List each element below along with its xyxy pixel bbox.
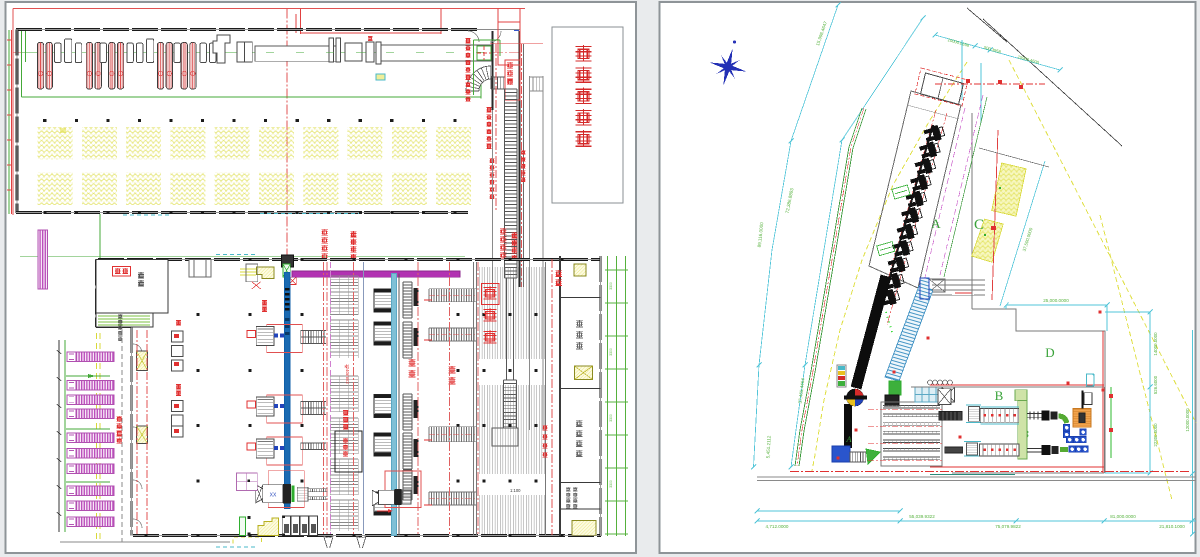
svg-text:1:100: 1:100	[510, 488, 521, 493]
svg-text:C: C	[974, 217, 984, 233]
svg-text:3300: 3300	[609, 480, 613, 488]
svg-text:A: A	[846, 435, 852, 444]
svg-text:526.6000: 526.6000	[1153, 375, 1158, 394]
svg-text:55,039.9322: 55,039.9322	[909, 514, 935, 519]
svg-text:14000.0000: 14000.0000	[1153, 332, 1158, 356]
svg-text:D: D	[1045, 345, 1054, 360]
svg-text:4,712.0000: 4,712.0000	[766, 524, 789, 529]
svg-text:21,810.1000: 21,810.1000	[1159, 524, 1185, 529]
svg-text:A: A	[931, 216, 941, 231]
svg-text:12000.0000: 12000.0000	[1185, 408, 1190, 432]
svg-text:3300: 3300	[609, 348, 613, 356]
svg-text:25,000.0000: 25,000.0000	[1043, 298, 1069, 303]
svg-text:3240mm2: 3240mm2	[345, 364, 350, 384]
svg-text:B: B	[995, 388, 1004, 403]
svg-text:22300.0000: 22300.0000	[1153, 423, 1158, 447]
svg-text:XX: XX	[270, 493, 277, 499]
svg-text:3300: 3300	[609, 282, 613, 290]
svg-text:75,079.9822: 75,079.9822	[995, 524, 1021, 529]
svg-text:3300: 3300	[609, 414, 613, 422]
svg-text:81,000.0000: 81,000.0000	[1110, 514, 1136, 519]
